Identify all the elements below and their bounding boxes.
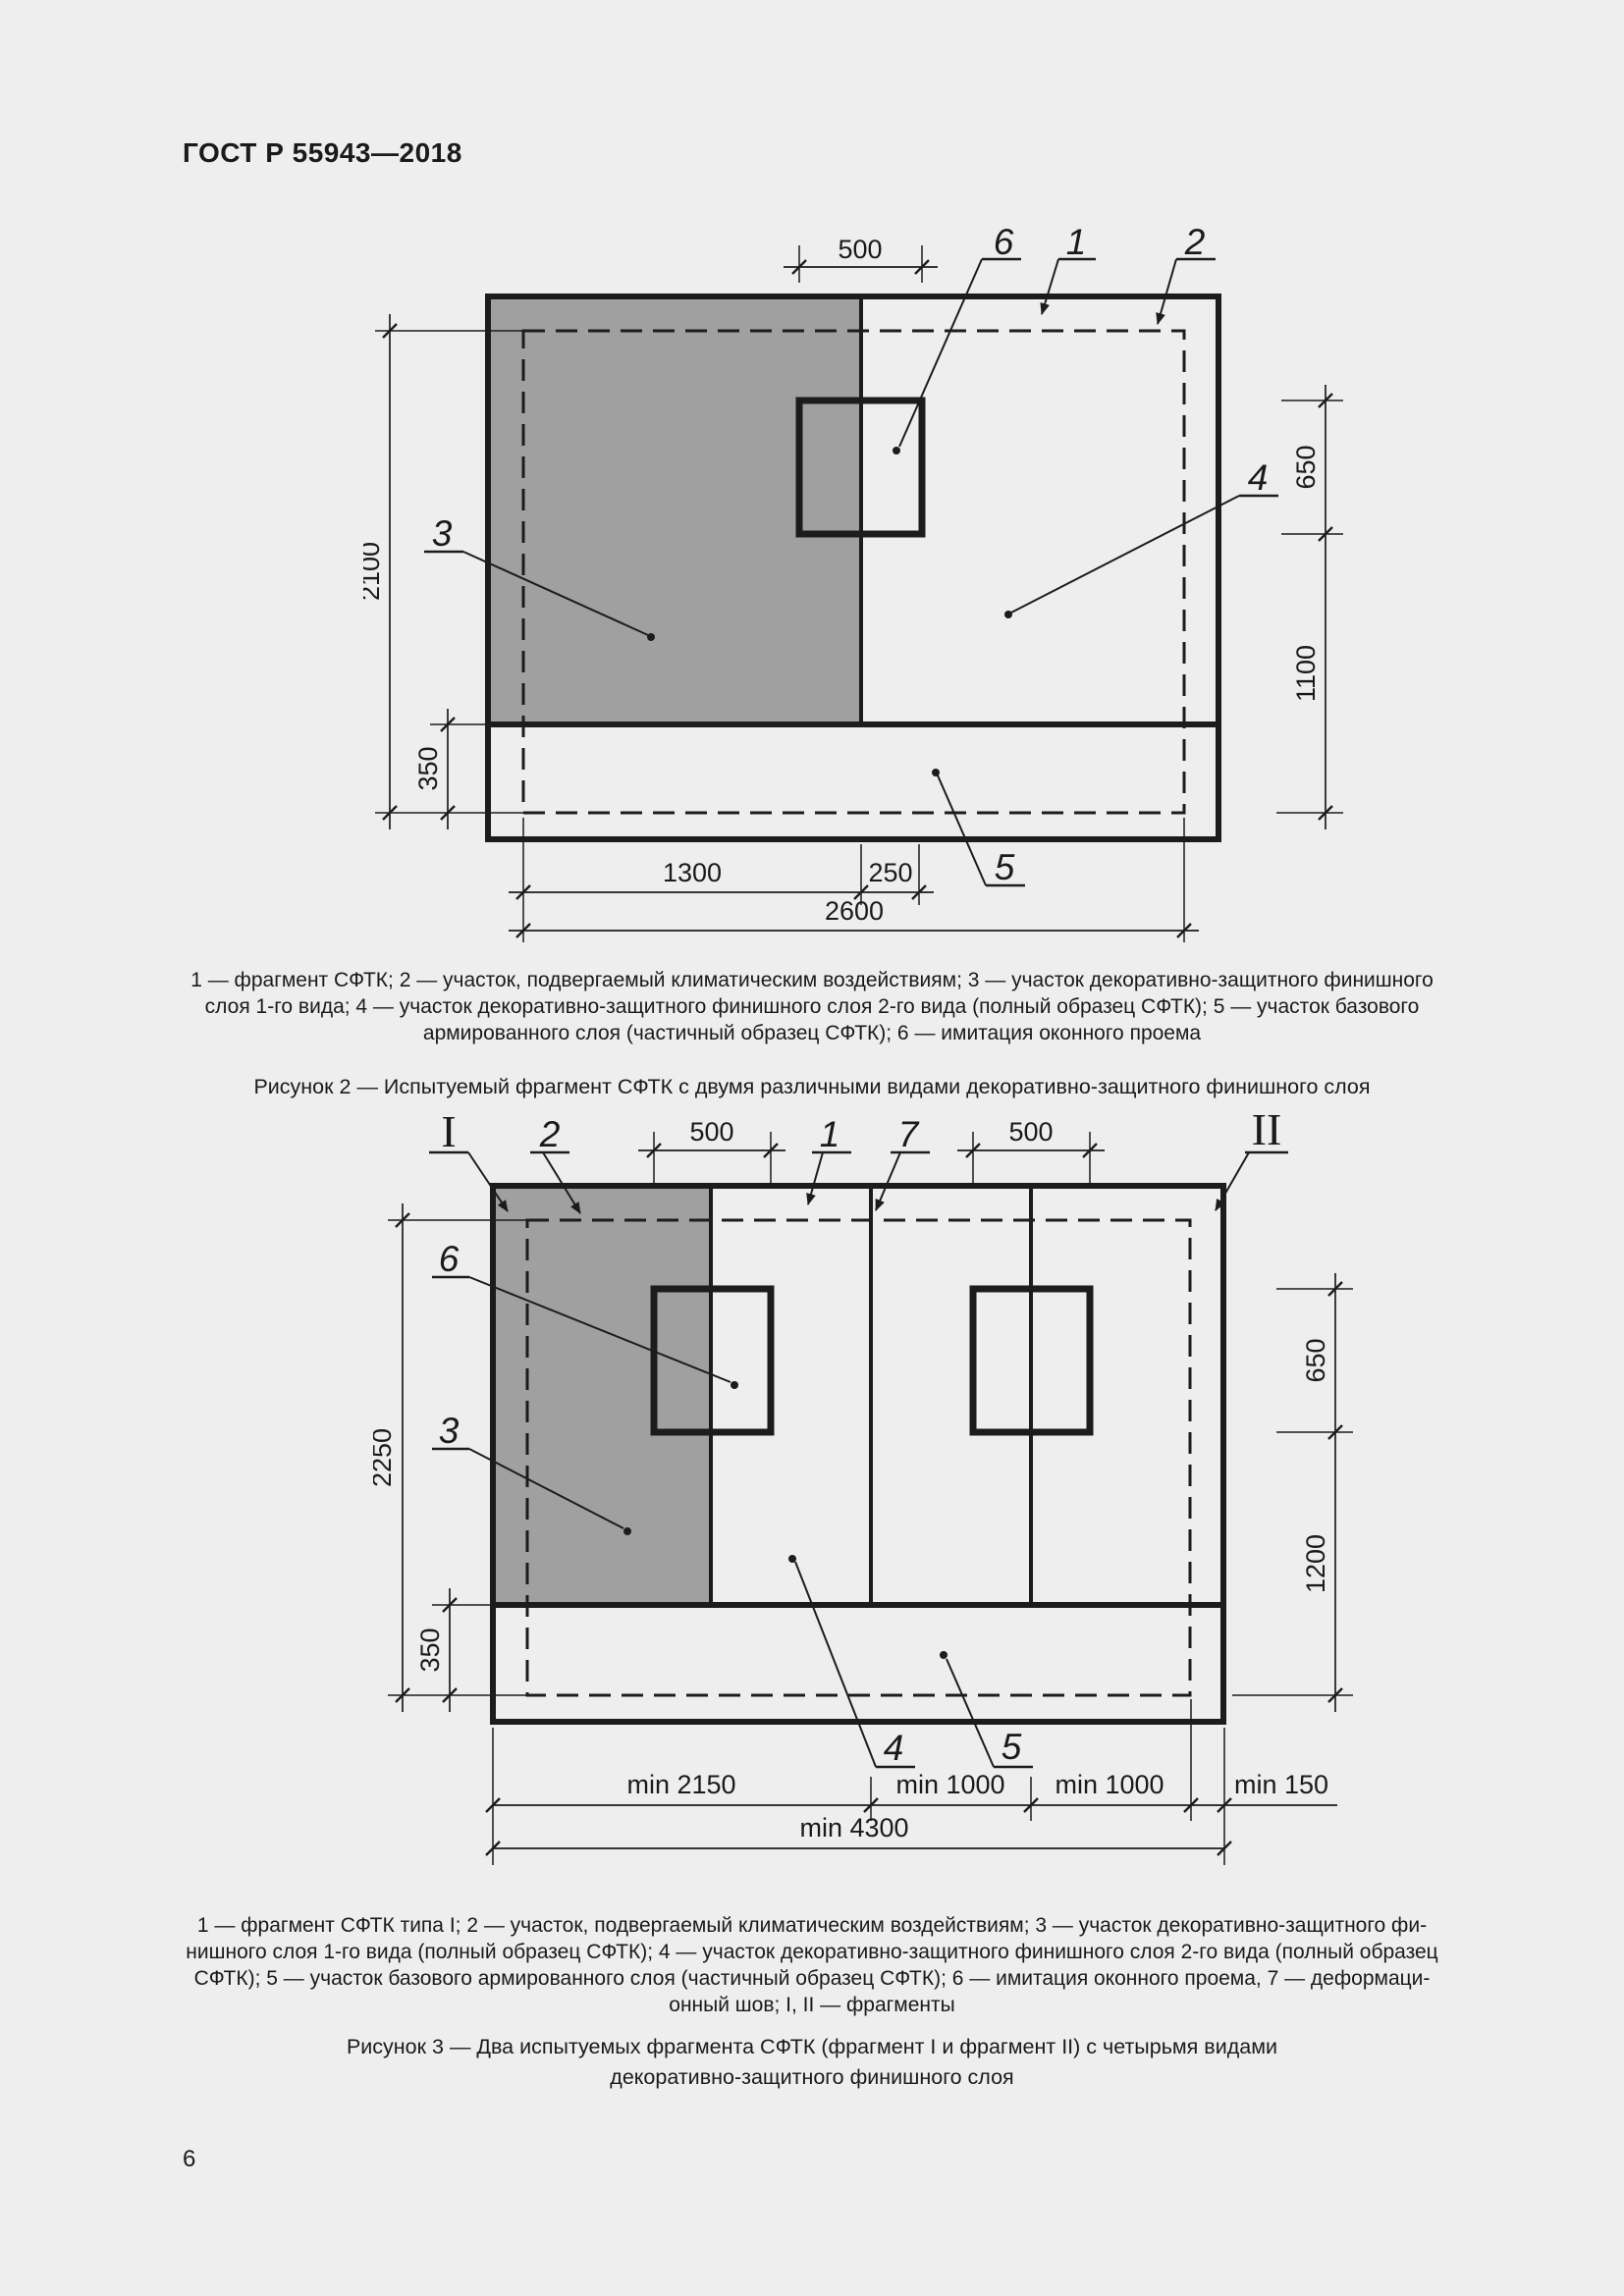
fig2-label-4: 4 — [1004, 457, 1278, 618]
figure2-drawing: 500 2100 350 650 1100 13 — [363, 226, 1375, 957]
fig3-dim-window2-width: 500 — [957, 1117, 1105, 1183]
svg-text:5: 5 — [1001, 1727, 1022, 1767]
svg-text:1300: 1300 — [663, 858, 722, 887]
svg-text:500: 500 — [689, 1117, 733, 1147]
svg-text:2250: 2250 — [373, 1428, 397, 1487]
svg-text:500: 500 — [838, 235, 882, 264]
fig2-label-1: 1 — [1042, 226, 1096, 314]
svg-text:2: 2 — [539, 1114, 561, 1154]
fig2-label-6: 6 — [893, 226, 1021, 454]
svg-text:3: 3 — [432, 513, 453, 554]
svg-text:250: 250 — [868, 858, 912, 887]
svg-text:min 150: min 150 — [1234, 1770, 1328, 1799]
svg-text:4: 4 — [884, 1728, 904, 1768]
fig3-label-fragment-II: II — [1216, 1109, 1288, 1210]
figure2-legend-line: слоя 1-го вида; 4 — участок декоративно-… — [118, 993, 1506, 1020]
fig3-dim-window-height: 650 1200 — [1232, 1273, 1353, 1712]
fig3-dim-strip-height: 350 — [415, 1588, 493, 1712]
fig2-label-2: 2 — [1158, 226, 1216, 324]
svg-text:1: 1 — [820, 1114, 840, 1154]
svg-text:min 1000: min 1000 — [1055, 1770, 1164, 1799]
figure3-legend-line: СФТК); 5 — участок базового армированног… — [118, 1965, 1506, 1992]
svg-text:4: 4 — [1248, 457, 1269, 498]
svg-text:I: I — [441, 1109, 456, 1156]
fig3-finish-type1-area — [493, 1186, 711, 1605]
svg-text:2600: 2600 — [825, 896, 884, 926]
fig2-dim-strip-height: 350 — [413, 709, 488, 829]
svg-text:II: II — [1252, 1109, 1282, 1154]
svg-text:2: 2 — [1184, 226, 1206, 262]
standard-number-heading: ГОСТ Р 55943—2018 — [183, 137, 462, 169]
svg-text:650: 650 — [1291, 445, 1321, 489]
svg-text:min 2150: min 2150 — [626, 1770, 735, 1799]
svg-text:min 4300: min 4300 — [799, 1813, 908, 1842]
fig3-label-5: 5 — [940, 1651, 1033, 1767]
svg-text:350: 350 — [413, 746, 443, 790]
svg-text:2100: 2100 — [363, 542, 385, 601]
figure2-legend: 1 — фрагмент СФТК; 2 — участок, подверга… — [118, 967, 1506, 1046]
svg-text:650: 650 — [1301, 1338, 1330, 1382]
figure2-legend-line: армированного слоя (частичный образец СФ… — [118, 1020, 1506, 1046]
fig3-dim-window1-width: 500 — [638, 1117, 785, 1183]
fig3-label-7: 7 — [876, 1114, 930, 1210]
svg-text:min 1000: min 1000 — [895, 1770, 1004, 1799]
svg-text:1200: 1200 — [1301, 1534, 1330, 1593]
svg-text:1: 1 — [1066, 226, 1087, 262]
figure3-drawing: 500 500 2250 350 650 1200 — [373, 1109, 1394, 1914]
fig3-label-1: 1 — [808, 1114, 851, 1204]
fig2-finish-type1-area — [488, 296, 861, 724]
figure3-caption-line: Рисунок 3 — Два испытуемых фрагмента СФТ… — [118, 2032, 1506, 2062]
fig2-dim-window-width: 500 — [784, 235, 938, 283]
svg-text:350: 350 — [415, 1628, 445, 1672]
svg-text:5: 5 — [995, 847, 1015, 887]
figure3-legend-line: онный шов; I, II — фрагменты — [118, 1992, 1506, 2018]
svg-text:6: 6 — [439, 1239, 460, 1279]
figure2-caption: Рисунок 2 — Испытуемый фрагмент СФТК с д… — [118, 1072, 1506, 1102]
figure3-legend-line: нишного слоя 1-го вида (полный образец С… — [118, 1939, 1506, 1965]
svg-text:1100: 1100 — [1291, 645, 1321, 702]
fig2-label-5: 5 — [932, 769, 1025, 887]
figure3-caption-line: декоративно-защитного финишного слоя — [118, 2062, 1506, 2093]
page-number: 6 — [183, 2146, 195, 2173]
figure3-legend-line: 1 — фрагмент СФТК типа I; 2 — участок, п… — [118, 1912, 1506, 1939]
figure3-legend: 1 — фрагмент СФТК типа I; 2 — участок, п… — [118, 1912, 1506, 2018]
document-page: { "header": { "title": "ГОСТ Р 55943—201… — [0, 0, 1624, 2296]
figure2-legend-line: 1 — фрагмент СФТК; 2 — участок, подверга… — [118, 967, 1506, 993]
figure3-caption: Рисунок 3 — Два испытуемых фрагмента СФТ… — [118, 2032, 1506, 2093]
svg-text:3: 3 — [439, 1411, 460, 1451]
fig3-label-4: 4 — [788, 1555, 915, 1768]
fig2-dim-window-height: 650 1100 — [1276, 385, 1343, 829]
svg-text:7: 7 — [898, 1114, 920, 1154]
svg-text:500: 500 — [1008, 1117, 1053, 1147]
svg-text:6: 6 — [994, 226, 1014, 262]
